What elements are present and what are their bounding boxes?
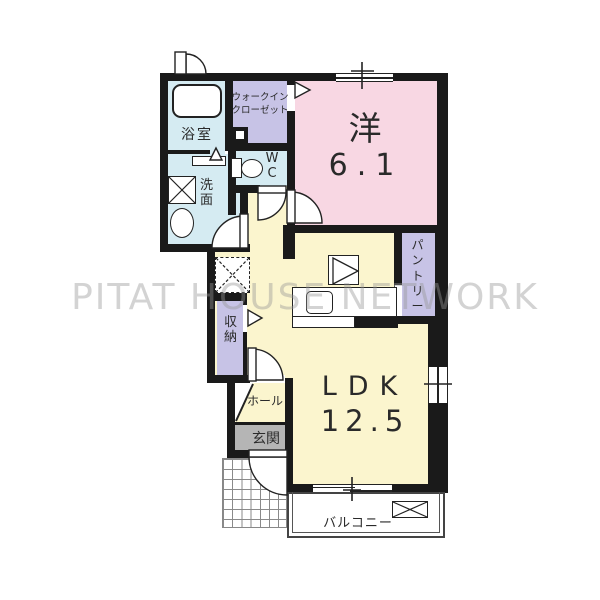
washroom-door-leaf (240, 214, 248, 248)
western-room-window-line (336, 77, 393, 79)
wall-segment (437, 73, 448, 233)
hall-label: ホール (243, 393, 287, 408)
western-room-size: 6.1 (322, 147, 410, 183)
wall-segment (428, 316, 448, 493)
western-room-label: 洋 (345, 106, 385, 146)
entrance-porch-tiles (222, 458, 287, 528)
ldk-side-window-line (437, 367, 439, 403)
bath-counter (192, 156, 226, 166)
bathroom-label: 浴室 (176, 125, 218, 143)
hall-upper-floor (248, 186, 287, 252)
toilet-icon (241, 159, 263, 178)
entrance-step-line (235, 422, 285, 425)
bathtub-icon (172, 84, 222, 118)
balcony-window-track (313, 487, 355, 489)
walk-in-closet-label: ウォークインクローゼット (231, 92, 289, 118)
wall-segment (240, 186, 248, 215)
wall-segment (160, 73, 168, 252)
wall-segment (207, 375, 250, 383)
entrance-label: 玄関 (246, 429, 286, 447)
utility-door-arc (186, 54, 206, 74)
entrance-door-opening (249, 450, 287, 458)
wash-basin-icon (170, 208, 194, 238)
washroom-label: 洗面 (199, 178, 214, 209)
ldk-size: 12.5 (310, 404, 420, 438)
wall-segment (227, 383, 235, 458)
wall-segment (227, 450, 249, 458)
western-door-opening (287, 190, 295, 223)
wc-label: WC (265, 151, 279, 182)
ldk-door-opening (250, 375, 285, 383)
washing-machine-space-icon (168, 176, 196, 204)
utility-door-leaf (175, 52, 186, 74)
bath-partition-line (168, 150, 210, 154)
wall-segment (160, 73, 448, 81)
wall-segment (287, 225, 448, 233)
pipe-space (236, 131, 244, 139)
watermark-text: PITAT HOUSE NETWORK (60, 274, 550, 320)
ldk-label: LDK (317, 370, 413, 402)
balcony-label: バルコニー (318, 512, 398, 530)
floor-plan: 浴室 洗面 WC ウォークインクローゼット 洋 6.1 パントリー 収納 ホール… (0, 0, 600, 600)
wall-segment (283, 225, 295, 259)
wall-segment (160, 244, 250, 252)
